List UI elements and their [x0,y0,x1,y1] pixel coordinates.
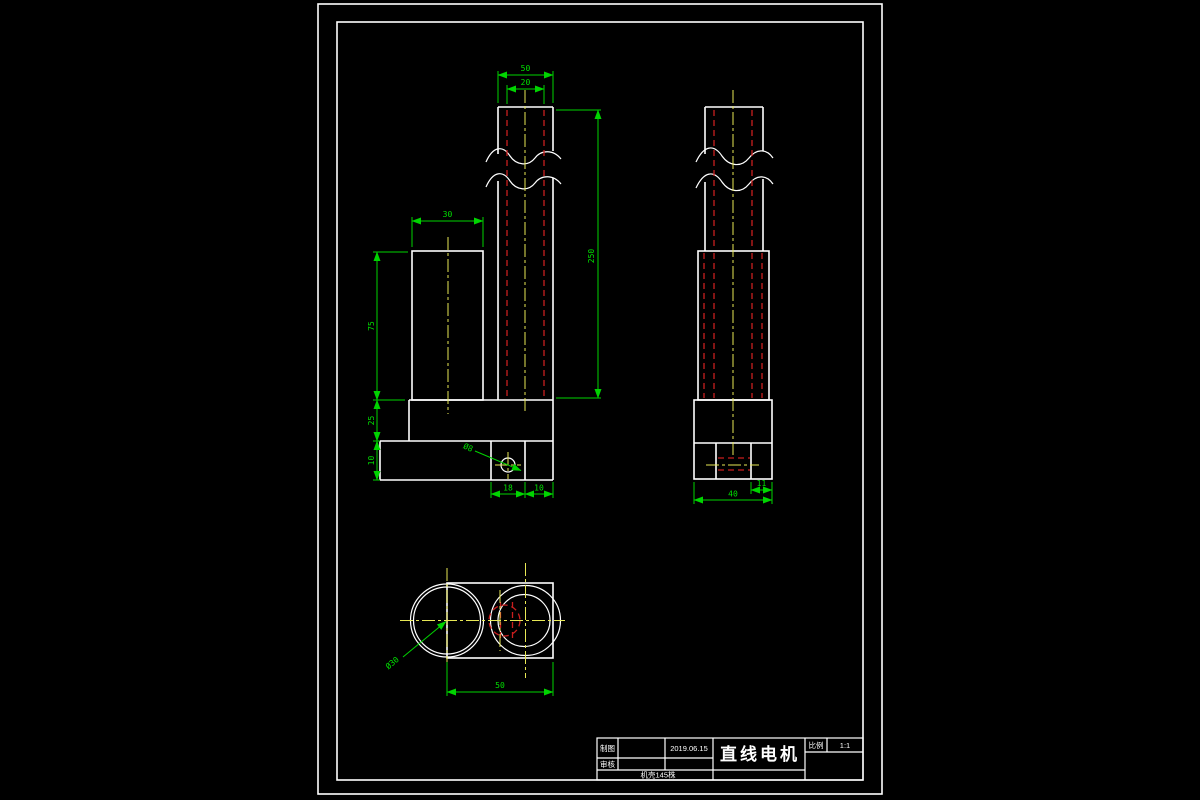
dim-label-body-height: 75 [367,321,376,331]
dim-label-flange-height: 25 [367,416,376,426]
title-block-scale-label: 比例 [809,740,824,750]
dim-label-hole-dia: Ø8 [462,441,475,454]
title-block-note: 机壳145株 [640,770,676,780]
bottom-view: Ø30 50 [383,563,565,696]
break-line [696,148,773,165]
title-block: 制图 审核 2019.06.15 直线电机 比例 1:1 机壳145株 [597,738,863,780]
side-view: 11 40 [694,90,773,504]
dim-label-hole-inset: 11 [757,479,767,488]
dim-label-hole-offset-b: 10 [534,484,544,493]
dim-label-body-width: 30 [443,210,453,219]
drawing-frame [318,4,882,794]
cad-drawing: 50 20 30 75 25 10 18 10 [0,0,1200,800]
dim-label-bore-dia: Ø30 [383,654,401,671]
side-dimensions: 11 40 [694,479,772,504]
front-dimensions: 50 20 30 75 25 10 18 10 [367,64,601,498]
dim-label-side-base-width: 40 [728,490,738,499]
cad-canvas: 50 20 30 75 25 10 18 10 [0,0,1200,800]
front-view: 50 20 30 75 25 10 18 10 [367,64,601,498]
dim-label-base-thickness: 10 [367,456,376,466]
title-block-part-title: 直线电机 [720,744,800,764]
dim-label-hole-offset-a: 18 [503,484,513,493]
dim-label-shaft-width: 50 [521,64,531,73]
front-centerlines [448,90,525,479]
break-line [696,174,773,191]
dim-label-bottom-width: 50 [495,681,505,690]
title-block-scale-value: 1:1 [840,741,850,750]
title-block-drawn-label: 制图 [600,743,615,753]
front-outline [380,107,561,480]
dim-label-shaft-length: 250 [587,249,596,264]
title-block-date: 2019.06.15 [670,744,708,753]
title-block-checked-label: 审核 [600,759,615,769]
dim-label-shaft-bore: 20 [521,78,531,87]
bottom-centerlines [400,563,565,678]
